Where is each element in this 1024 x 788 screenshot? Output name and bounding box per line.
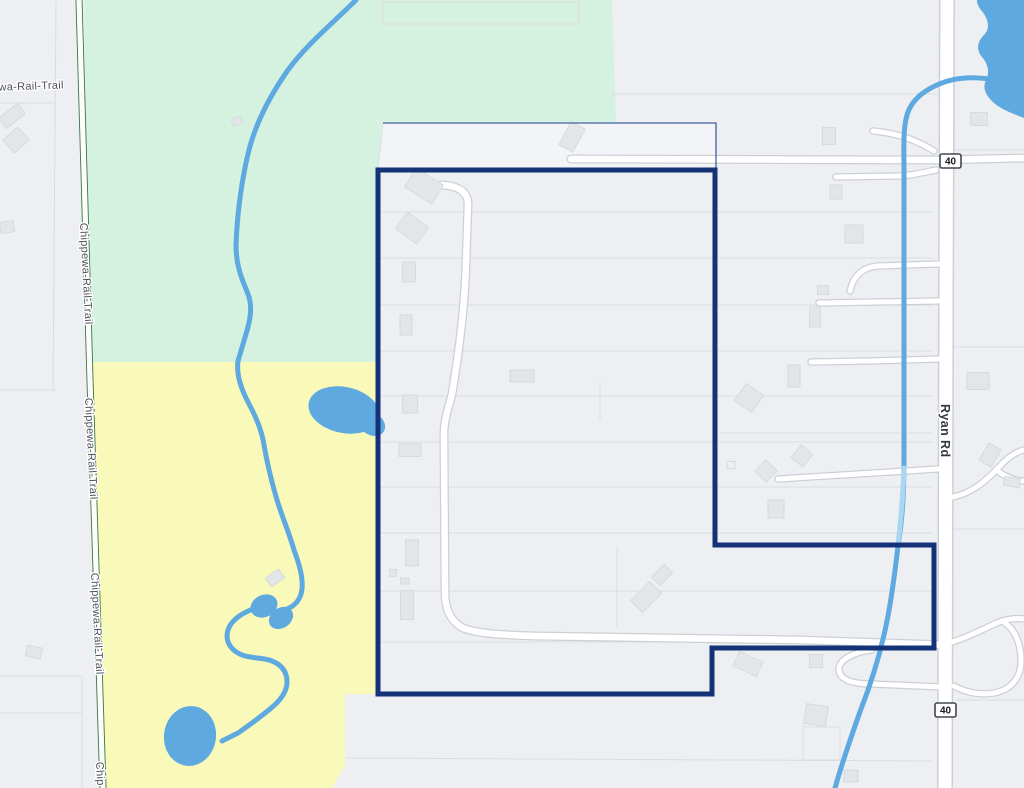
route-badge-top: 40 — [940, 154, 961, 168]
route-badge-bottom: 40 — [935, 703, 956, 717]
road-label-ryan-rd: Ryan Rd — [938, 404, 952, 458]
building — [400, 315, 412, 335]
building — [406, 540, 419, 566]
building — [967, 373, 989, 390]
building — [830, 185, 842, 199]
trail-label-partial: Chip — [93, 762, 106, 786]
building — [823, 128, 836, 145]
building — [804, 704, 829, 727]
building — [788, 365, 800, 387]
map-canvas[interactable]: Chippewa-Rail-Trail Chippewa-Rail-Trail … — [0, 0, 1024, 788]
building — [403, 262, 416, 282]
map-viewport[interactable]: Chippewa-Rail-Trail Chippewa-Rail-Trail … — [0, 0, 1024, 788]
building — [844, 770, 858, 782]
building — [510, 370, 534, 382]
route-number: 40 — [940, 706, 952, 717]
building — [403, 395, 418, 413]
building — [401, 578, 410, 584]
building — [768, 500, 784, 518]
building — [0, 221, 15, 234]
building — [390, 570, 397, 577]
building — [845, 225, 863, 243]
building — [818, 286, 829, 295]
building — [399, 444, 421, 457]
building — [810, 655, 823, 668]
route-number: 40 — [945, 157, 957, 168]
building — [971, 113, 988, 126]
building — [810, 307, 821, 327]
building — [401, 591, 414, 620]
road-ryan-rd — [945, 0, 947, 788]
